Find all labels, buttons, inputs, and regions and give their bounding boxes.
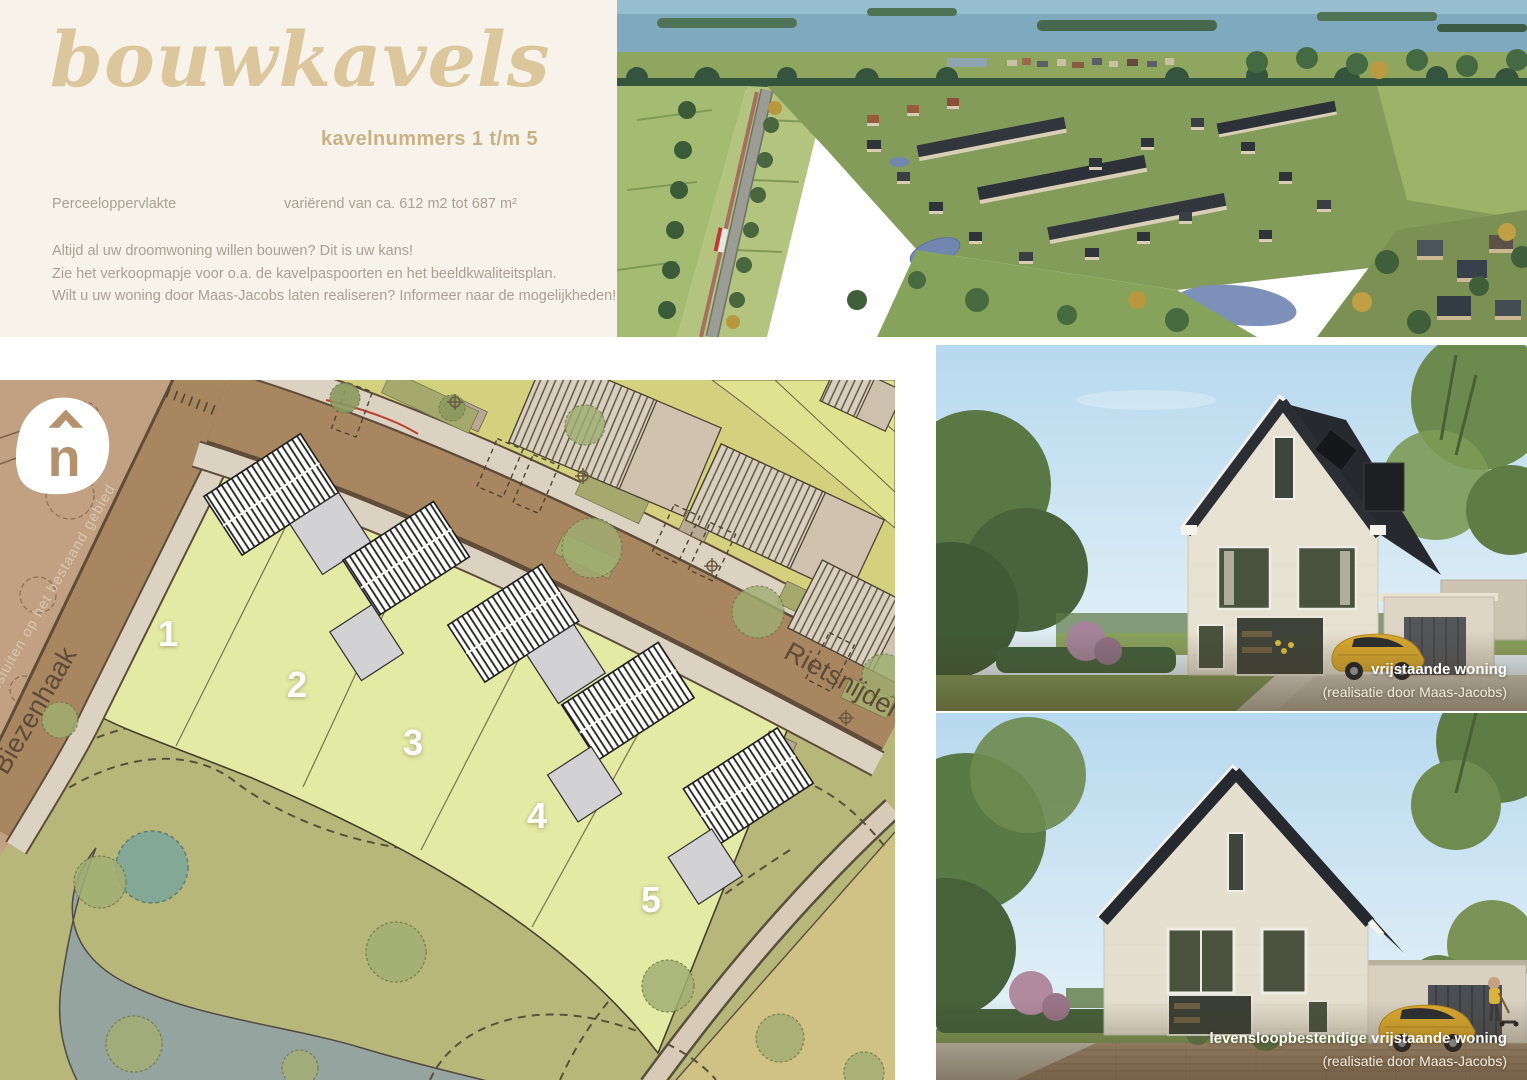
window [1262, 929, 1306, 993]
intro-line-2: Zie het verkoopmapje voor o.a. de kavelp… [52, 263, 616, 286]
intro-line-1: Altijd al uw droomwoning willen bouwen? … [52, 240, 616, 263]
plot-number-4: 4 [527, 795, 547, 836]
caption-house-bottom: levensloopbestendige vrijstaande woning … [1209, 1028, 1507, 1072]
plot-number-1: 1 [158, 613, 178, 654]
site-plan-map: aansluiten op het bestaand gebied Biezen… [0, 380, 895, 1080]
gable-window [1274, 437, 1294, 499]
spec-label: Perceeloppervlakte [52, 196, 284, 212]
page-title: bouwkavels [50, 22, 551, 98]
house-render-bottom [936, 713, 1527, 1080]
photo-house-bottom: levensloopbestendige vrijstaande woning … [936, 713, 1527, 1080]
logo-leaf: n [12, 394, 112, 498]
aerial-photo-illustration [617, 0, 1527, 337]
intro-line-3: Wilt u uw woning door Maas-Jacobs laten … [52, 285, 616, 308]
intro-text: Altijd al uw droomwoning willen bouwen? … [52, 240, 616, 308]
spec-value: variërend van ca. 612 m2 tot 687 m² [284, 196, 517, 212]
caption-title: vrijstaande woning [1323, 659, 1507, 681]
caption-sub: (realisatie door Maas-Jacobs) [1323, 681, 1507, 703]
aerial-photo [617, 0, 1527, 337]
dormer [1364, 463, 1404, 511]
house-render-top [936, 345, 1527, 711]
intro-panel: bouwkavels kavelnummers 1 t/m 5 Perceelo… [0, 0, 617, 337]
photo-house-top: vrijstaande woning (realisatie door Maas… [936, 345, 1527, 711]
gable-window [1228, 833, 1244, 891]
caption-sub: (realisatie door Maas-Jacobs) [1209, 1050, 1507, 1072]
plot-number-2: 2 [287, 664, 307, 705]
spec-row: Perceeloppervlakte variërend van ca. 612… [52, 196, 517, 212]
caption-title: levensloopbestendige vrijstaande woning [1209, 1028, 1507, 1050]
page-subtitle: kavelnummers 1 t/m 5 [52, 128, 538, 151]
site-plan: aansluiten op het bestaand gebied Biezen… [0, 380, 895, 1080]
logo-letter: n [48, 428, 81, 488]
caption-house-top: vrijstaande woning (realisatie door Maas… [1323, 659, 1507, 703]
plot-number-3: 3 [403, 722, 423, 763]
plot-number-5: 5 [641, 879, 661, 920]
brochure-page: bouwkavels kavelnummers 1 t/m 5 Perceelo… [0, 0, 1527, 1080]
logo-illustration: n [12, 394, 112, 498]
